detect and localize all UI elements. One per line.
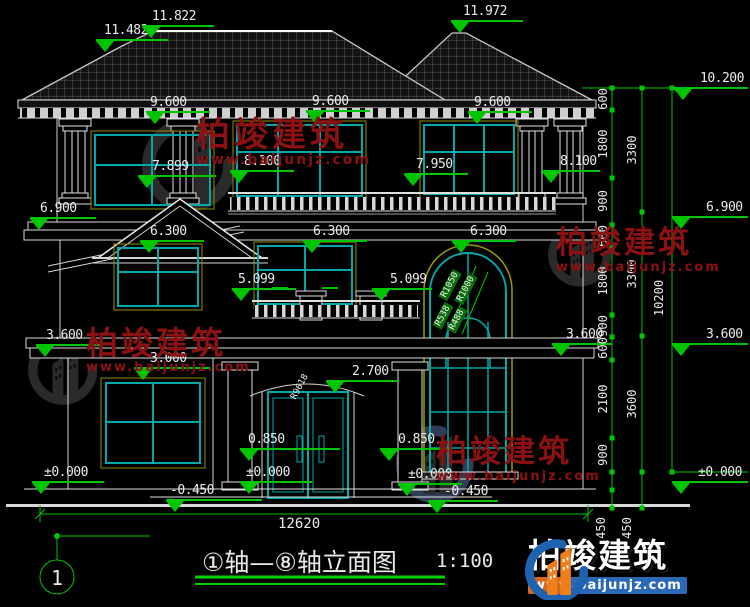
building-linework	[0, 0, 750, 607]
elevation-marker: ±0.000	[672, 466, 748, 494]
dim-floor: 3600	[625, 390, 639, 419]
dim-total-width: 12620	[278, 516, 320, 532]
dim-segment: 900	[596, 190, 610, 212]
elevation-label: ±0.000	[672, 466, 748, 480]
dim-segment: 600	[596, 88, 610, 110]
elevation-label: 6.300	[452, 225, 516, 239]
elevation-marker: 11.822	[142, 10, 214, 38]
elevation-marker: 2.700	[326, 365, 398, 393]
elevation-marker: 7.950	[404, 158, 468, 186]
cad-elevation-drawing: 11.482 11.822 11.972 9.600 9.600 9.600 7…	[0, 0, 750, 607]
elevation-marker: 8.100	[542, 155, 600, 183]
elevation-label: ±0.000	[240, 466, 312, 480]
elevation-marker: 3.600	[672, 328, 748, 356]
elevation-label: 7.899	[138, 160, 216, 174]
elevation-marker: 6.900	[30, 202, 96, 230]
elevation-label: 9.600	[306, 95, 370, 109]
elevation-label: 6.900	[672, 201, 748, 215]
drawing-title: ①轴—⑧轴立面图	[202, 543, 397, 579]
elevation-label: ±0.000	[32, 466, 104, 480]
elevation-label: 8.100	[542, 155, 600, 169]
elevation-label: 2.700	[326, 365, 398, 379]
elevation-label: 10.200	[674, 72, 748, 86]
elevation-marker: 6.300	[140, 225, 204, 253]
elevation-label: 3.600	[36, 329, 100, 343]
dim-total-height: 10200	[652, 280, 666, 316]
elevation-label: 9.600	[468, 96, 532, 110]
elevation-marker: 9.600	[468, 96, 532, 124]
first-floor-window	[101, 378, 205, 468]
elevation-label: 3.600	[672, 328, 748, 342]
elevation-label: 0.850	[380, 433, 452, 447]
elevation-marker: 8.100	[230, 155, 294, 183]
elevation-label: 9.600	[146, 96, 210, 110]
elevation-marker: 3.000	[134, 352, 210, 380]
dim-segment: 1800	[596, 267, 610, 296]
elevation-marker: 6.300	[452, 225, 516, 253]
elevation-marker: 3.600	[36, 329, 100, 357]
elevation-label: 11.822	[142, 10, 214, 24]
elevation-label: 6.900	[30, 202, 96, 216]
elevation-label: 7.950	[404, 158, 468, 172]
elevation-marker: -0.450	[428, 485, 498, 513]
elevation-marker: 5.099	[372, 273, 432, 301]
elevation-label: 5.099	[372, 273, 432, 287]
axis-bubble-number: 1	[51, 566, 63, 590]
cornice-3600	[26, 338, 598, 358]
elevation-marker: 0.850	[380, 433, 452, 461]
elevation-label: 5.099	[232, 273, 296, 287]
elevation-marker: 9.600	[306, 95, 370, 123]
dim-segment: 600	[596, 337, 610, 359]
drawing-scale: 1:100	[436, 550, 493, 572]
elevation-marker: ±0.000	[32, 466, 104, 494]
elevation-label: 8.100	[230, 155, 294, 169]
elevation-marker: -0.450	[166, 484, 262, 512]
elevation-label: -0.450	[166, 484, 262, 498]
elevation-label: 3.000	[134, 352, 210, 366]
elevation-label: 11.972	[451, 5, 523, 19]
company-logo-icon	[524, 538, 588, 600]
elevation-marker: 11.972	[451, 5, 523, 33]
elevation-marker: 6.300	[303, 225, 367, 253]
elevation-label: 6.300	[140, 225, 204, 239]
dim-segment: 900	[596, 444, 610, 466]
elevation-marker: 6.900	[672, 201, 748, 229]
dim-segment: 1800	[596, 130, 610, 159]
dim-floor: 3300	[625, 136, 639, 165]
elevation-marker: 0.850	[240, 433, 340, 461]
dim-segment: 600	[596, 225, 610, 247]
dim-segment: 900	[596, 315, 610, 337]
elevation-label: 6.300	[303, 225, 367, 239]
elevation-marker: 10.200	[674, 72, 748, 100]
elevation-label: 0.850	[240, 433, 340, 447]
dim-floor: 3300	[625, 260, 639, 289]
elevation-marker: 9.600	[146, 96, 210, 124]
elevation-marker: 7.899	[138, 160, 216, 188]
company-logo: 柏竣建筑 www.baijunjz.com	[524, 538, 750, 604]
elevation-label: ±0.000	[398, 468, 462, 482]
elevation-label: -0.450	[428, 485, 498, 499]
elevation-marker: 5.099	[232, 273, 296, 301]
dim-segment: 2100	[596, 385, 610, 414]
